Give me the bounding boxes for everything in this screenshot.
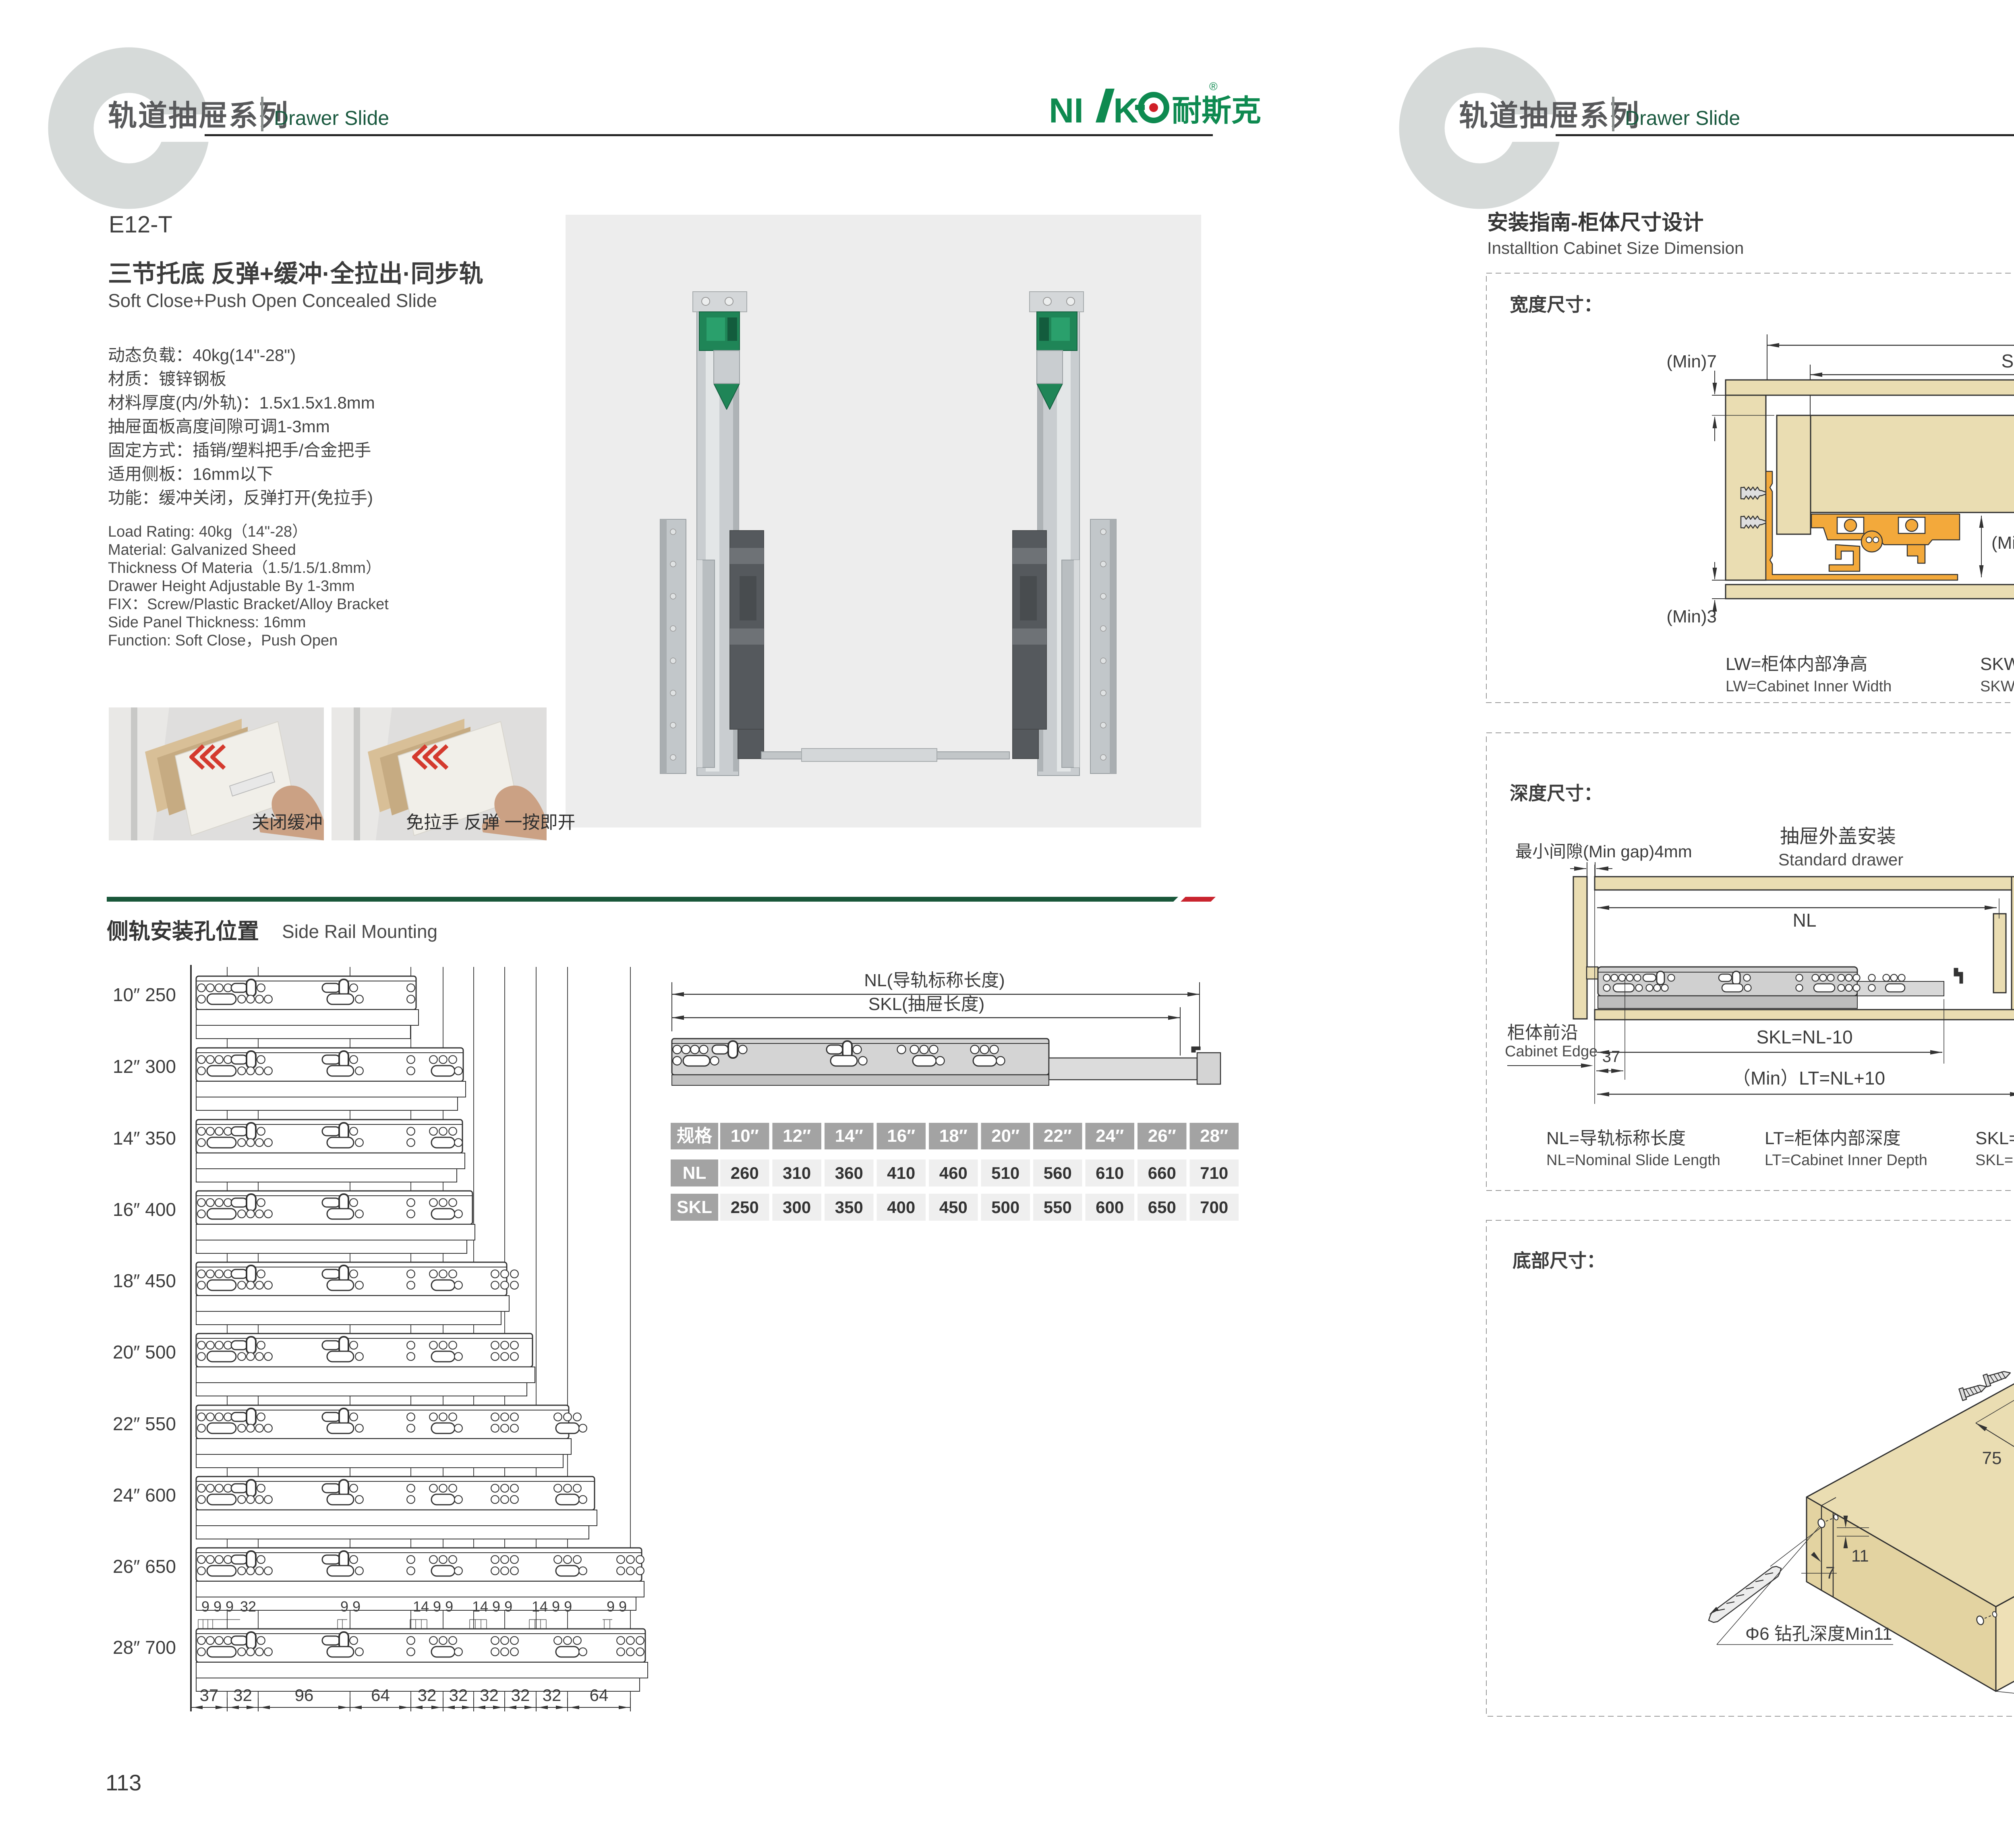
svg-text:22″: 22″: [1044, 1126, 1072, 1146]
svg-text:500: 500: [991, 1198, 1019, 1217]
svg-text:柜体前沿: 柜体前沿: [1507, 1023, 1578, 1043]
svg-text:NL=Nominal Slide Length: NL=Nominal Slide Length: [1546, 1152, 1720, 1169]
svg-text:固定方式：插销/塑料把手/合金把手: 固定方式：插销/塑料把手/合金把手: [108, 441, 371, 460]
svg-text:材质：镀锌钢板: 材质：镀锌钢板: [108, 369, 226, 388]
svg-text:SKW=LW-42: SKW=LW-42: [2002, 351, 2014, 371]
svg-text:LW=Cabinet Inner Width: LW=Cabinet Inner Width: [1726, 678, 1892, 695]
svg-text:9 9: 9 9: [340, 1598, 361, 1615]
svg-text:32: 32: [511, 1686, 530, 1705]
svg-text:NI: NI: [1049, 91, 1084, 130]
svg-text:三节托底 反弹+缓冲·全拉出·同步轨: 三节托底 反弹+缓冲·全拉出·同步轨: [108, 260, 483, 287]
svg-text:32: 32: [240, 1598, 256, 1615]
svg-text:®: ®: [1209, 80, 1218, 93]
svg-text:Drawer Height Adjustable By 1-: Drawer Height Adjustable By 1-3mm: [108, 578, 354, 595]
svg-text:规格: 规格: [677, 1126, 713, 1146]
svg-text:K: K: [1113, 91, 1138, 130]
svg-text:Installtion Cabinet Size Dimen: Installtion Cabinet Size Dimension: [1487, 239, 1744, 257]
svg-text:抽屉外盖安装: 抽屉外盖安装: [1780, 826, 1896, 847]
svg-text:Standard drawer: Standard drawer: [1778, 850, 1904, 869]
svg-text:260: 260: [731, 1164, 759, 1182]
svg-text:Side Rail Mounting: Side Rail Mounting: [282, 921, 437, 942]
svg-text:600: 600: [1096, 1198, 1124, 1217]
svg-text:SKW=抽屉宽度: SKW=抽屉宽度: [1980, 654, 2014, 674]
svg-text:LT=柜体内部深度: LT=柜体内部深度: [1765, 1128, 1901, 1148]
svg-text:450: 450: [939, 1198, 968, 1217]
svg-text:FIX：Screw/Plastic Bracket/Allo: FIX：Screw/Plastic Bracket/Alloy Bracket: [108, 596, 389, 613]
svg-text:710: 710: [1200, 1164, 1228, 1182]
svg-text:28″ 700: 28″ 700: [113, 1637, 176, 1658]
svg-text:侧轨安装孔位置: 侧轨安装孔位置: [107, 919, 259, 944]
svg-text:560: 560: [1044, 1164, 1072, 1182]
svg-text:14 9 9: 14 9 9: [532, 1598, 572, 1615]
svg-text:抽屉面板高度间隙可调1-3mm: 抽屉面板高度间隙可调1-3mm: [108, 417, 330, 436]
svg-text:Drawer Slide: Drawer Slide: [1625, 107, 1740, 129]
svg-text:14″: 14″: [835, 1126, 863, 1146]
svg-text:功能：缓冲关闭，反弹打开(免拉手): 功能：缓冲关闭，反弹打开(免拉手): [108, 488, 373, 507]
svg-text:Side Panel Thickness: 16mm: Side Panel Thickness: 16mm: [108, 614, 306, 631]
svg-text:适用侧板：16mm以下: 适用侧板：16mm以下: [108, 465, 274, 483]
svg-text:350: 350: [835, 1198, 863, 1217]
svg-text:关闭缓冲: 关闭缓冲: [252, 813, 323, 832]
svg-text:64: 64: [590, 1686, 609, 1705]
svg-text:(Min)27.5: (Min)27.5: [1991, 533, 2014, 553]
svg-text:材料厚度(内/外轨)：1.5x1.5x1.8mm: 材料厚度(内/外轨)：1.5x1.5x1.8mm: [108, 393, 375, 412]
svg-text:最小间隙(Min gap)4mm: 最小间隙(Min gap)4mm: [1515, 842, 1692, 861]
svg-text:18″: 18″: [939, 1126, 968, 1146]
svg-text:510: 510: [991, 1164, 1019, 1182]
svg-text:深度尺寸：: 深度尺寸：: [1510, 783, 1602, 804]
svg-text:96: 96: [295, 1686, 314, 1705]
svg-text:550: 550: [1044, 1198, 1072, 1217]
svg-text:20″: 20″: [991, 1126, 1019, 1146]
svg-text:32: 32: [480, 1686, 499, 1705]
svg-text:Material: Galvanized Sheed: Material: Galvanized Sheed: [108, 541, 296, 558]
svg-text:32: 32: [449, 1686, 468, 1705]
svg-text:宽度尺寸：: 宽度尺寸：: [1510, 294, 1602, 315]
svg-text:9 9 9: 9 9 9: [201, 1598, 234, 1615]
svg-text:SKL(抽屉长度): SKL(抽屉长度): [868, 994, 984, 1014]
svg-text:SKL=Drawer Length: SKL=Drawer Length: [1975, 1152, 2014, 1169]
svg-text:360: 360: [835, 1164, 863, 1182]
svg-text:（Min）LT=NL+10: （Min）LT=NL+10: [1732, 1068, 1885, 1089]
svg-text:SKL=抽屉长度: SKL=抽屉长度: [1975, 1128, 2014, 1148]
svg-text:11: 11: [1851, 1546, 1869, 1565]
svg-text:E12-T: E12-T: [109, 212, 172, 238]
svg-text:LW=柜体内部净高: LW=柜体内部净高: [1726, 654, 1867, 674]
svg-text:Thickness Of Materia（1.5/1.5/1: Thickness Of Materia（1.5/1.5/1.8mm）: [108, 560, 381, 577]
svg-text:650: 650: [1148, 1198, 1176, 1217]
svg-text:300: 300: [783, 1198, 811, 1217]
svg-text:(Min)3: (Min)3: [1666, 607, 1717, 626]
svg-text:SKL=NL-10: SKL=NL-10: [1756, 1027, 1852, 1047]
svg-text:SKW=Drawer Width: SKW=Drawer Width: [1980, 678, 2014, 695]
svg-text:免拉手 反弹 一按即开: 免拉手 反弹 一按即开: [406, 813, 575, 832]
svg-text:24″ 600: 24″ 600: [113, 1485, 176, 1506]
svg-text:NL(导轨标称长度): NL(导轨标称长度): [864, 971, 1005, 990]
svg-text:410: 410: [887, 1164, 915, 1182]
svg-text:底部尺寸：: 底部尺寸：: [1513, 1250, 1605, 1271]
svg-text:Load Rating: 40kg（14"-28）: Load Rating: 40kg（14"-28）: [108, 523, 307, 540]
svg-text:32: 32: [233, 1686, 252, 1705]
svg-text:(Min)7: (Min)7: [1666, 352, 1717, 371]
svg-text:14 9 9: 14 9 9: [472, 1598, 512, 1615]
svg-text:24″: 24″: [1096, 1126, 1124, 1146]
svg-text:28″: 28″: [1200, 1126, 1228, 1146]
svg-text:18″ 450: 18″ 450: [113, 1270, 176, 1291]
svg-text:动态负载：40kg(14"-28"): 动态负载：40kg(14"-28"): [108, 346, 296, 365]
svg-text:Drawer Slide: Drawer Slide: [274, 107, 389, 129]
svg-text:10″: 10″: [731, 1126, 759, 1146]
svg-text:310: 310: [783, 1164, 811, 1182]
svg-text:26″ 650: 26″ 650: [113, 1556, 176, 1577]
svg-text:660: 660: [1148, 1164, 1176, 1182]
svg-text:113: 113: [106, 1770, 141, 1795]
svg-text:16″: 16″: [887, 1126, 915, 1146]
svg-text:20″ 500: 20″ 500: [113, 1342, 176, 1363]
svg-text:LT=Cabinet Inner Depth: LT=Cabinet Inner Depth: [1765, 1152, 1927, 1169]
svg-text:610: 610: [1096, 1164, 1124, 1182]
svg-text:9 9: 9 9: [607, 1598, 627, 1615]
svg-text:75: 75: [1982, 1448, 2002, 1468]
svg-text:37: 37: [1602, 1048, 1620, 1066]
svg-text:7: 7: [1825, 1563, 1835, 1582]
svg-text:64: 64: [371, 1686, 390, 1705]
svg-text:14 9 9: 14 9 9: [413, 1598, 453, 1615]
svg-text:Soft Close+Push Open Concealed: Soft Close+Push Open Concealed Slide: [108, 290, 437, 311]
svg-text:12″ 300: 12″ 300: [113, 1056, 176, 1077]
svg-text:32: 32: [543, 1686, 562, 1705]
svg-text:250: 250: [731, 1198, 759, 1217]
svg-text:37: 37: [200, 1686, 219, 1705]
svg-text:16″ 400: 16″ 400: [113, 1199, 176, 1220]
svg-text:32: 32: [418, 1686, 437, 1705]
svg-text:26″: 26″: [1148, 1126, 1176, 1146]
svg-text:Φ6 钻孔深度Min11: Φ6 钻孔深度Min11: [1745, 1624, 1892, 1644]
svg-text:Cabinet Edge: Cabinet Edge: [1505, 1043, 1598, 1060]
svg-text:安装指南-柜体尺寸设计: 安装指南-柜体尺寸设计: [1487, 211, 1703, 234]
svg-text:460: 460: [939, 1164, 968, 1182]
svg-text:SKL: SKL: [677, 1197, 712, 1217]
svg-text:400: 400: [887, 1198, 915, 1217]
svg-text:700: 700: [1200, 1198, 1228, 1217]
svg-text:14″ 350: 14″ 350: [113, 1128, 176, 1149]
svg-text:22″ 550: 22″ 550: [113, 1413, 176, 1434]
svg-text:NL: NL: [683, 1163, 707, 1183]
svg-text:12″: 12″: [783, 1126, 811, 1146]
svg-text:NL=导轨标称长度: NL=导轨标称长度: [1546, 1128, 1686, 1148]
svg-text:10″ 250: 10″ 250: [113, 984, 176, 1005]
svg-text:Function: Soft Close，Push Open: Function: Soft Close，Push Open: [108, 632, 338, 649]
svg-text:耐斯克: 耐斯克: [1172, 94, 1261, 127]
svg-text:NL: NL: [1793, 910, 1817, 931]
